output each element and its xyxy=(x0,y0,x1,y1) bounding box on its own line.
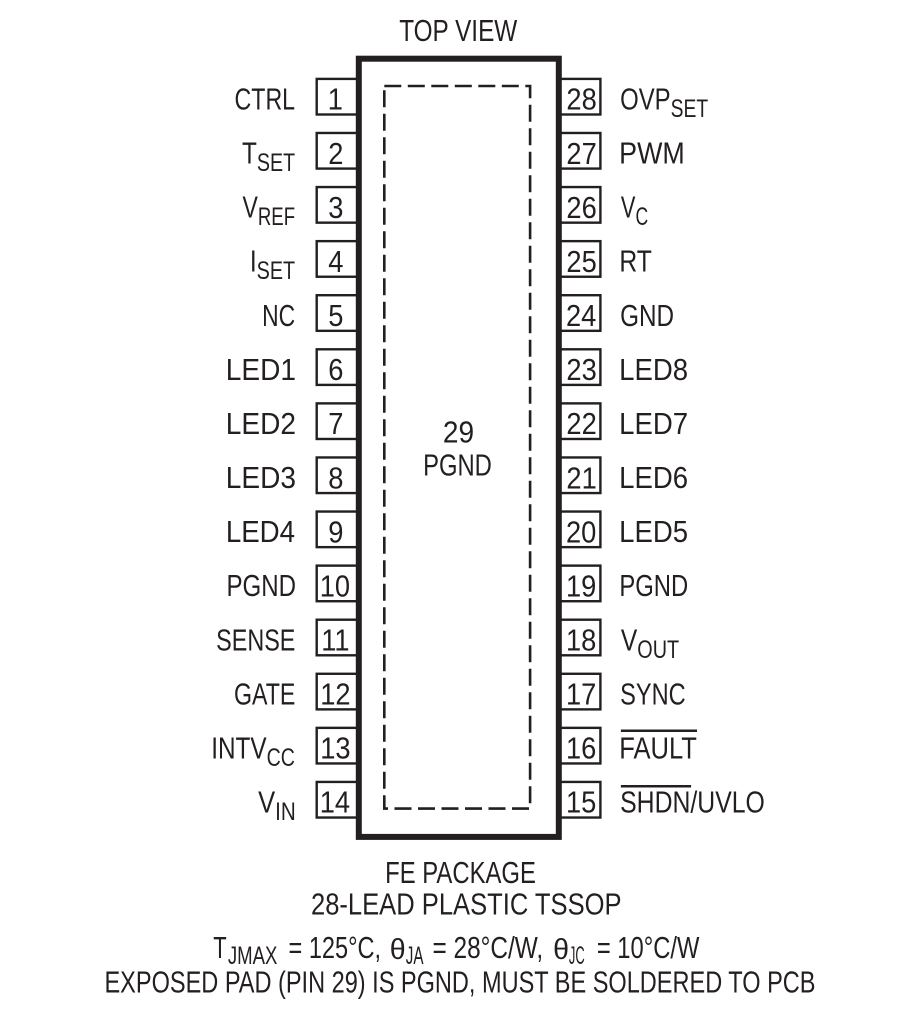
svg-text:4: 4 xyxy=(328,245,343,279)
svg-text:= 125°C,: = 125°C, xyxy=(289,930,382,965)
svg-text:SHDN/UVLO: SHDN/UVLO xyxy=(620,785,765,819)
svg-text:SET: SET xyxy=(257,149,295,177)
svg-text:INTV: INTV xyxy=(211,731,267,765)
svg-text:23: 23 xyxy=(566,354,596,388)
svg-text:SET: SET xyxy=(671,95,709,123)
svg-text:V: V xyxy=(243,189,259,224)
svg-text:RT: RT xyxy=(619,244,652,278)
svg-text:T: T xyxy=(213,930,226,965)
svg-text:C: C xyxy=(635,202,648,231)
svg-text:LED4: LED4 xyxy=(226,515,295,550)
svg-text:26: 26 xyxy=(566,191,596,225)
svg-text:10: 10 xyxy=(320,570,350,604)
svg-text:16: 16 xyxy=(566,732,596,766)
svg-text:27: 27 xyxy=(566,137,596,171)
svg-text:28: 28 xyxy=(566,83,596,117)
svg-text:CTRL: CTRL xyxy=(235,81,296,116)
svg-text:IN: IN xyxy=(275,797,296,825)
svg-text:2: 2 xyxy=(328,137,343,171)
svg-text:21: 21 xyxy=(566,462,596,496)
svg-text:T: T xyxy=(242,136,257,170)
svg-text:25: 25 xyxy=(566,245,596,279)
svg-text:LED6: LED6 xyxy=(619,461,688,496)
svg-text:24: 24 xyxy=(566,299,596,333)
svg-text:LED1: LED1 xyxy=(226,353,296,388)
svg-text:PWM: PWM xyxy=(619,137,685,171)
svg-text:18: 18 xyxy=(566,624,596,658)
svg-text:20: 20 xyxy=(566,516,596,550)
svg-text:15: 15 xyxy=(566,786,596,820)
svg-text:= 28°C/W,: = 28°C/W, xyxy=(433,930,544,964)
svg-text:CC: CC xyxy=(267,744,295,772)
svg-text:14: 14 xyxy=(320,786,350,820)
svg-text:LED5: LED5 xyxy=(619,515,688,550)
svg-text:NC: NC xyxy=(262,297,295,332)
svg-text:5: 5 xyxy=(328,299,343,333)
svg-text:GATE: GATE xyxy=(234,676,295,711)
svg-text:LED8: LED8 xyxy=(619,352,688,387)
svg-text:19: 19 xyxy=(566,570,596,604)
svg-text:11: 11 xyxy=(321,624,349,658)
svg-text:LED2: LED2 xyxy=(226,407,296,442)
svg-text:EXPOSED PAD (PIN 29) IS PGND,: EXPOSED PAD (PIN 29) IS PGND, MUST BE SO… xyxy=(104,964,815,999)
svg-text:3: 3 xyxy=(328,191,343,225)
svg-text:17: 17 xyxy=(566,678,596,712)
svg-text:7: 7 xyxy=(328,408,343,442)
svg-text:29: 29 xyxy=(443,415,474,450)
svg-text:V: V xyxy=(258,785,275,820)
svg-text:LED7: LED7 xyxy=(619,407,688,442)
svg-text:V: V xyxy=(621,623,638,657)
svg-text:I: I xyxy=(250,244,257,278)
svg-text:OUT: OUT xyxy=(637,636,679,664)
svg-text:PGND: PGND xyxy=(423,447,492,482)
svg-text:θ: θ xyxy=(390,934,406,966)
svg-text:9: 9 xyxy=(328,516,343,550)
svg-text:8: 8 xyxy=(328,462,343,496)
svg-text:12: 12 xyxy=(320,678,350,712)
svg-text:SYNC: SYNC xyxy=(620,676,686,711)
svg-text:PGND: PGND xyxy=(619,568,688,603)
svg-text:TOP VIEW: TOP VIEW xyxy=(399,13,518,47)
svg-text:= 10°C/W: = 10°C/W xyxy=(597,930,700,965)
svg-text:SET: SET xyxy=(257,257,296,285)
svg-text:LED3: LED3 xyxy=(226,461,296,496)
svg-text:28-LEAD PLASTIC TSSOP: 28-LEAD PLASTIC TSSOP xyxy=(311,887,622,922)
svg-text:OVP: OVP xyxy=(620,82,670,117)
svg-text:FE PACKAGE: FE PACKAGE xyxy=(385,855,536,890)
svg-text:GND: GND xyxy=(620,298,674,333)
svg-text:SENSE: SENSE xyxy=(216,622,295,657)
svg-text:22: 22 xyxy=(566,408,596,442)
svg-text:FAULT: FAULT xyxy=(619,731,697,766)
svg-text:PGND: PGND xyxy=(226,568,296,603)
svg-text:θ: θ xyxy=(553,934,569,966)
svg-text:V: V xyxy=(621,190,636,225)
svg-text:REF: REF xyxy=(258,202,295,230)
svg-text:6: 6 xyxy=(328,354,343,388)
svg-text:13: 13 xyxy=(320,732,350,766)
svg-text:1: 1 xyxy=(328,83,343,117)
